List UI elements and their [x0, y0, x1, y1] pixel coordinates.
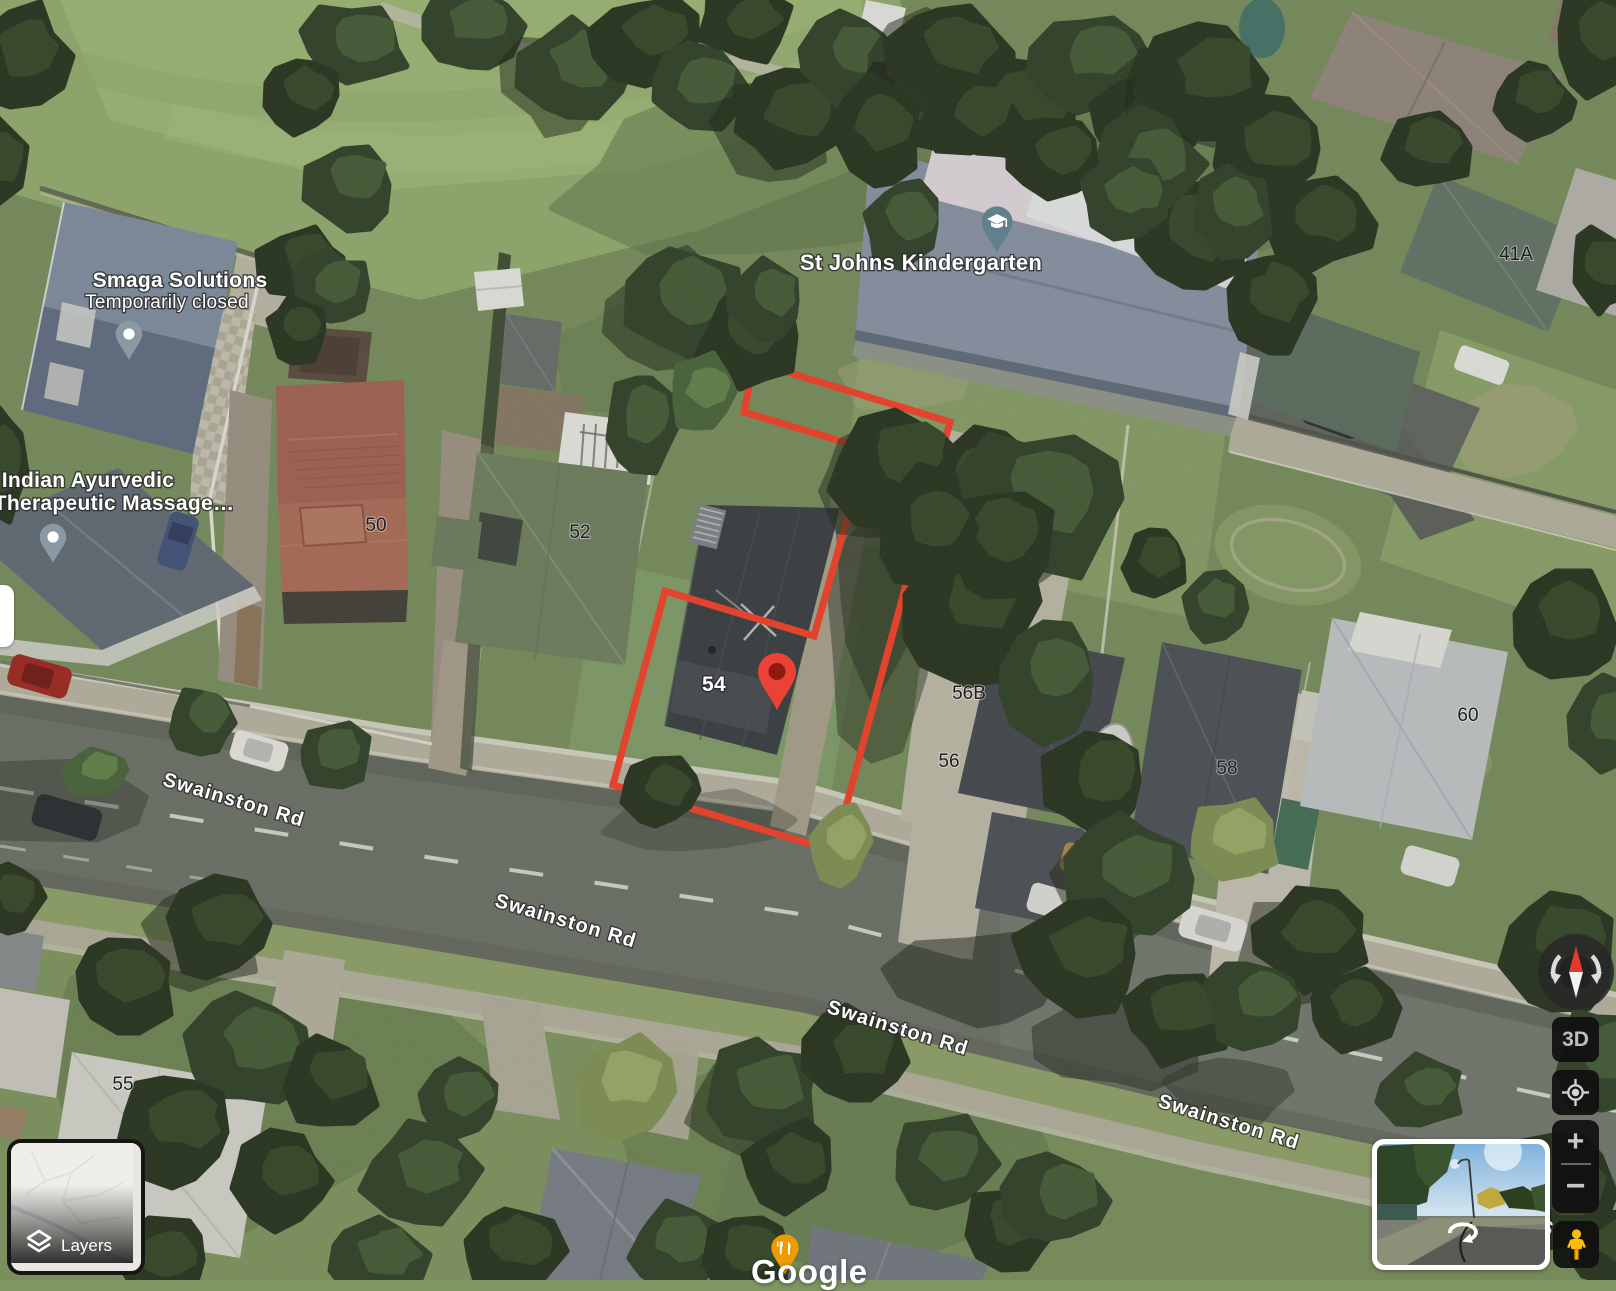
- svg-text:56: 56: [938, 751, 959, 772]
- svg-text:56B: 56B: [952, 683, 986, 704]
- svg-text:58: 58: [1216, 758, 1237, 779]
- svg-text:55: 55: [112, 1074, 133, 1095]
- svg-text:St Johns Kindergarten: St Johns Kindergarten: [800, 250, 1042, 275]
- svg-text:Layers: Layers: [61, 1236, 112, 1255]
- svg-text:41A: 41A: [1499, 244, 1533, 265]
- svg-text:Indian Ayurvedic: Indian Ayurvedic: [2, 469, 174, 492]
- svg-text:54: 54: [702, 673, 726, 696]
- svg-text:52: 52: [569, 522, 590, 543]
- svg-text:Temporarily closed: Temporarily closed: [85, 292, 249, 313]
- svg-text:60: 60: [1457, 705, 1478, 726]
- svg-text:Therapeutic Massage…: Therapeutic Massage…: [0, 492, 234, 515]
- svg-text:Smaga Solutions: Smaga Solutions: [93, 269, 268, 292]
- svg-text:50: 50: [365, 515, 386, 536]
